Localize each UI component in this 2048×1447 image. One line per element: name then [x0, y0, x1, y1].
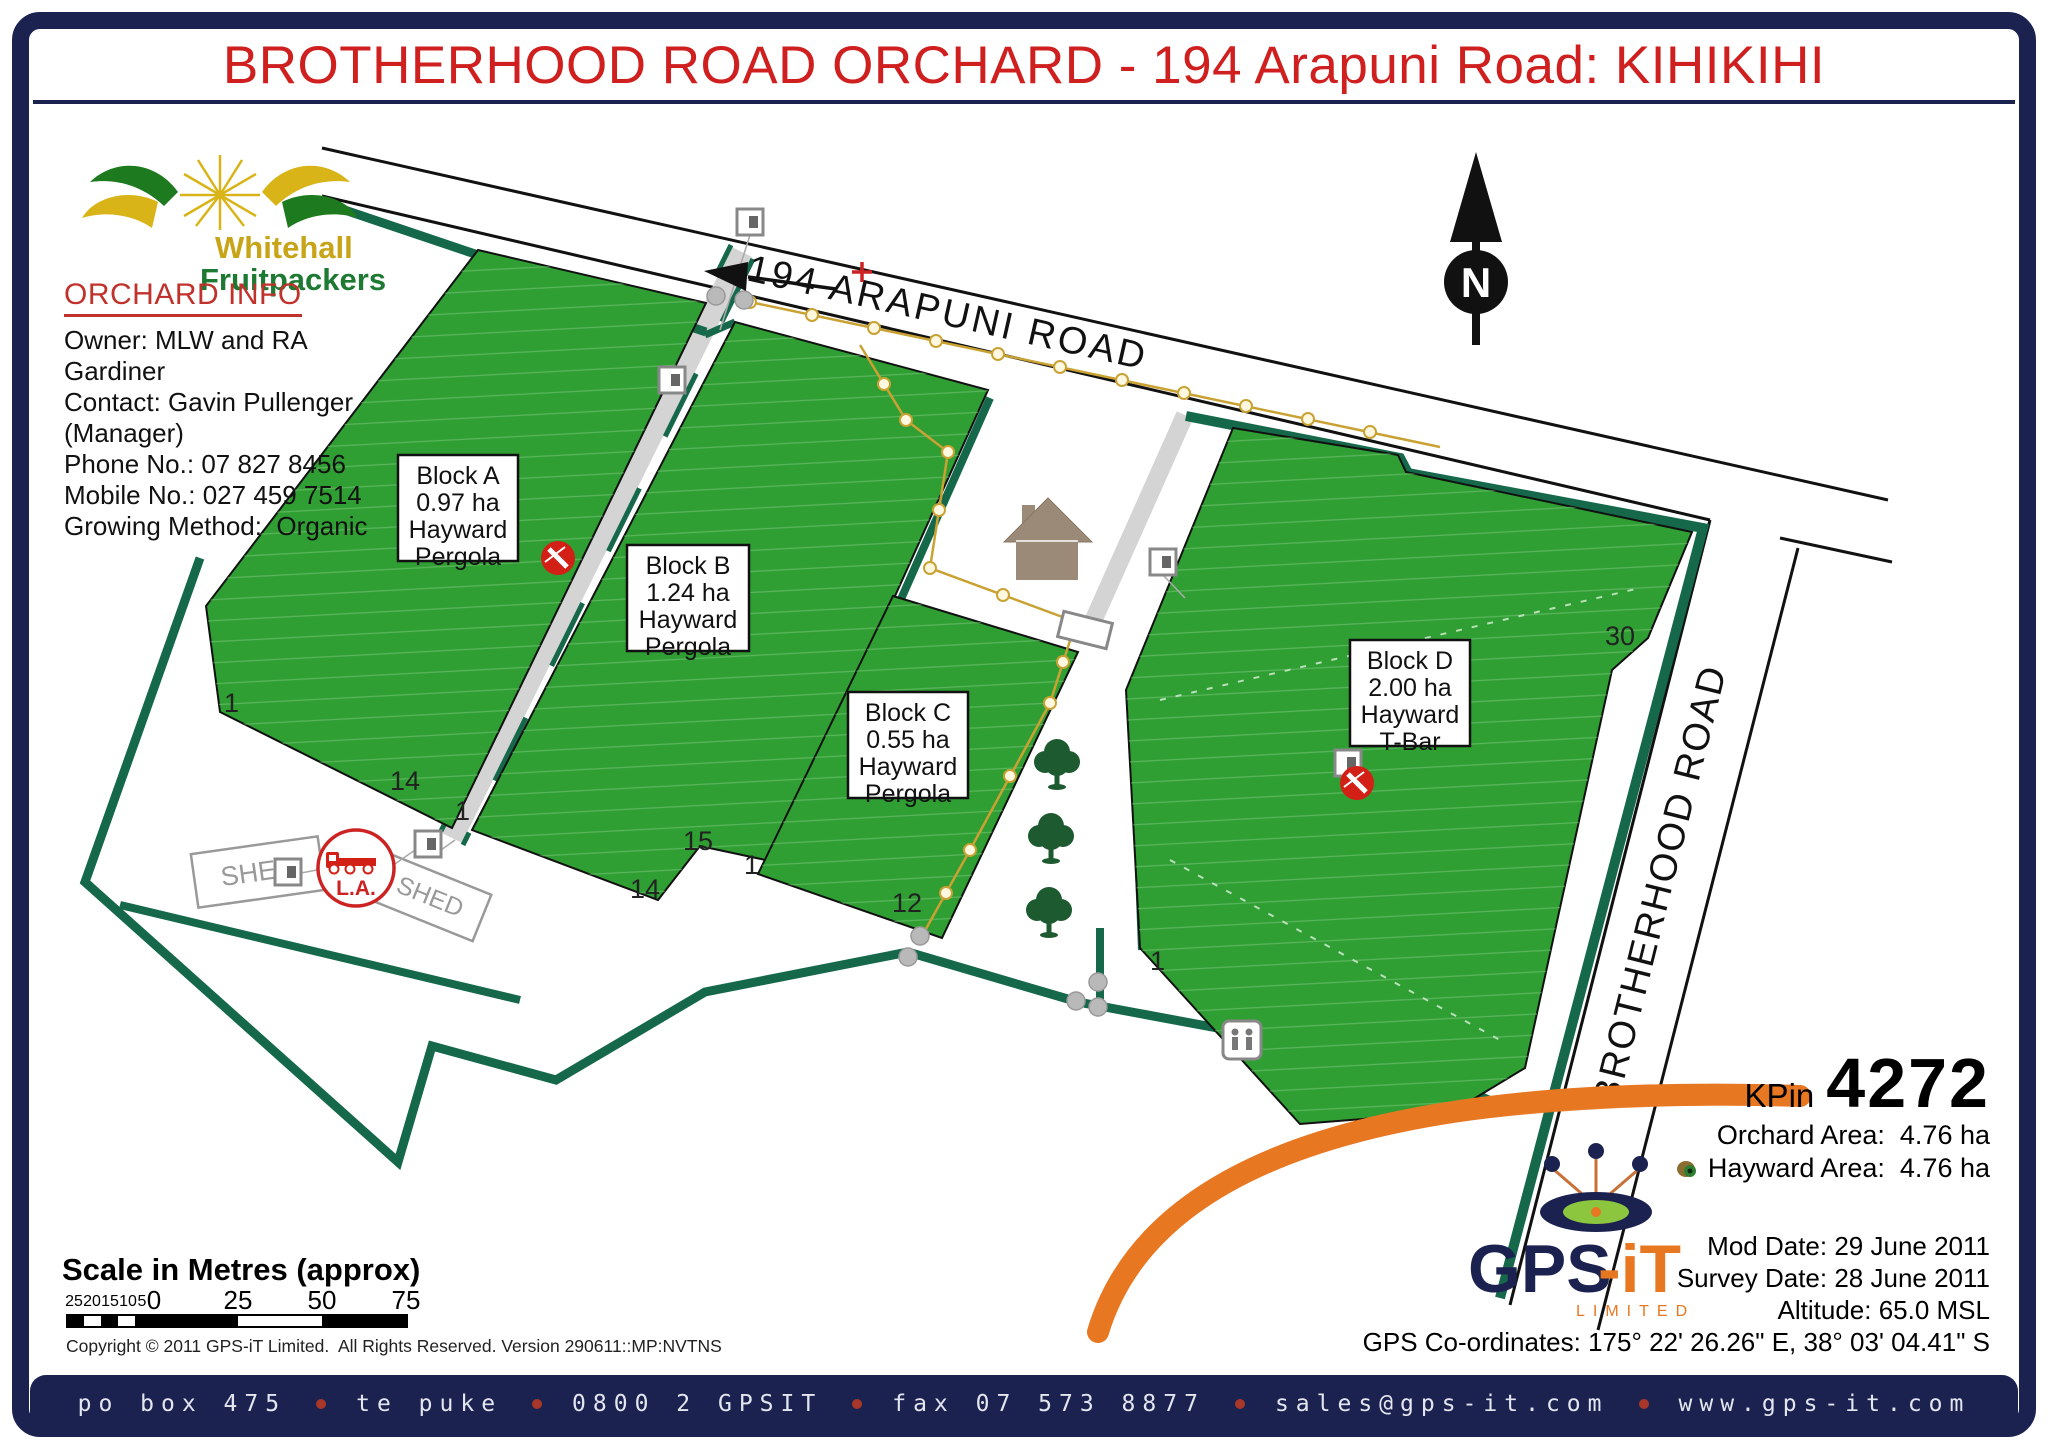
orchard-info-panel: ORCHARD INFO Owner: MLW and RA Gardiner … — [64, 278, 394, 542]
header: BROTHERHOOD ROAD ORCHARD - 194 Arapuni R… — [35, 32, 2013, 98]
tree-icons — [1026, 739, 1080, 938]
orchard-contact: Contact: Gavin Pullenger (Manager) — [64, 387, 394, 449]
whitehall-logo: Whitehall Fruitpackers — [60, 140, 390, 300]
whitehall-logo-line1: Whitehall — [215, 230, 353, 265]
load-area-marker: L.A. — [318, 830, 394, 906]
block-name: Block C — [865, 699, 951, 727]
footer-contact-bar: po box 475 te puke 0800 2 GPSIT fax 07 5… — [30, 1375, 2018, 1433]
survey-details: Mod Date: 29 June 2011 Survey Date: 28 J… — [1363, 1230, 1990, 1358]
gps-coordinates: GPS Co-ordinates: 175° 22' 26.26" E, 38°… — [1363, 1326, 1990, 1358]
row-number: 1 — [1150, 946, 1165, 976]
footer-separator-dot — [316, 1399, 326, 1409]
footer-fax: fax 07 573 8877 — [892, 1391, 1205, 1417]
row-number: 14 — [390, 766, 420, 796]
footer-po-box: po box 475 — [78, 1391, 286, 1417]
row-number: 14 — [630, 874, 660, 904]
hayward-area-value: Hayward Area: 4.76 ha — [1708, 1153, 1990, 1184]
footer-website: www.gps-it.com — [1679, 1391, 1971, 1417]
page-title: BROTHERHOOD ROAD ORCHARD - 194 Arapuni R… — [223, 35, 1825, 96]
orchard-mobile: Mobile No.: 027 459 7514 — [64, 480, 394, 511]
block-structure: T-Bar — [1379, 728, 1440, 756]
block-structure: Pergola — [645, 633, 731, 661]
block-variety: Hayward — [639, 606, 738, 634]
footer-separator-dot — [1235, 1399, 1245, 1409]
north-label: N — [1461, 259, 1491, 306]
scale-major-tick: 50 — [308, 1288, 337, 1315]
mod-date: Mod Date: 29 June 2011 — [1363, 1230, 1990, 1262]
scale-title: Scale in Metres (approx) — [62, 1252, 492, 1288]
scale-minor-tick: 20 — [83, 1293, 101, 1310]
row-number: 15 — [683, 826, 713, 856]
hayward-area-line: Hayward Area: 4.76 ha — [1676, 1153, 1990, 1184]
block-area: 0.97 ha — [416, 489, 500, 517]
scale-major-tick: 25 — [224, 1288, 253, 1315]
altitude: Altitude: 65.0 MSL — [1363, 1294, 1990, 1326]
row-number: 1 — [455, 796, 470, 826]
kpin-value: 4272 — [1826, 1048, 1990, 1118]
row-number: 1 — [224, 688, 239, 718]
hazard-marker-1 — [541, 541, 575, 575]
north-arrow: N — [1444, 152, 1508, 345]
scale-minor-tick: 25 — [65, 1293, 83, 1310]
block-area: 0.55 ha — [866, 726, 950, 754]
scale-minor-tick: 10 — [119, 1293, 137, 1310]
row-number: 12 — [892, 888, 922, 918]
block-structure: Pergola — [865, 780, 951, 808]
footer-town: te puke — [356, 1391, 502, 1417]
scale-minor-tick: 15 — [101, 1293, 119, 1310]
footer-email: sales@gps-it.com — [1275, 1391, 1609, 1417]
block-d-label: Block D 2.00 ha Hayward T-Bar — [1350, 640, 1470, 756]
scale-bar: Scale in Metres (approx) 25 20 15 10 5 0… — [62, 1252, 492, 1341]
copyright-line: Copyright © 2011 GPS-iT Limited. All Rig… — [66, 1336, 722, 1357]
row-number: 1 — [744, 850, 759, 880]
hazard-marker-2 — [1340, 766, 1374, 800]
block-name: Block A — [416, 462, 500, 490]
block-b-label: Block B 1.24 ha Hayward Pergola — [627, 545, 749, 661]
block-variety: Hayward — [409, 516, 508, 544]
block-c-label: Block C 0.55 ha Hayward Pergola — [848, 692, 968, 808]
toilet-icon — [1223, 1021, 1261, 1059]
footer-separator-dot — [852, 1399, 862, 1409]
block-name: Block B — [646, 552, 731, 580]
footer-separator-dot — [532, 1399, 542, 1409]
block-a-label: Block A 0.97 ha Hayward Pergola — [398, 455, 518, 571]
whitehall-logo-graphic — [82, 155, 358, 230]
scale-major-tick: 0 — [147, 1288, 161, 1315]
orchard-growing-method: Growing Method: Organic — [64, 511, 394, 542]
orchard-area-line: Orchard Area: 4.76 ha — [1676, 1120, 1990, 1151]
kiwifruit-icon — [1676, 1158, 1700, 1180]
block-area: 1.24 ha — [646, 579, 730, 607]
footer-phone: 0800 2 GPSIT — [572, 1391, 822, 1417]
orchard-phone: Phone No.: 07 827 8456 — [64, 449, 394, 480]
kpin-label: KPin — [1745, 1077, 1815, 1115]
row-number: 30 — [1605, 621, 1635, 651]
block-variety: Hayward — [859, 753, 958, 781]
scale-bar-graphic: 25 20 15 10 5 0 25 50 75 — [62, 1288, 492, 1336]
kpin-summary: KPin 4272 Orchard Area: 4.76 ha Hayward … — [1676, 1048, 1990, 1184]
title-divider — [33, 100, 2015, 104]
orchard-area-value: Orchard Area: 4.76 ha — [1717, 1120, 1990, 1151]
block-area: 2.00 ha — [1368, 674, 1452, 702]
scale-minor-tick: 5 — [138, 1293, 147, 1310]
orchard-map-page: SHED SHED — [0, 0, 2048, 1447]
footer-separator-dot — [1639, 1399, 1649, 1409]
orchard-owner: Owner: MLW and RA Gardiner — [64, 325, 394, 387]
orchard-info-heading: ORCHARD INFO — [64, 278, 302, 317]
survey-date: Survey Date: 28 June 2011 — [1363, 1262, 1990, 1294]
block-variety: Hayward — [1361, 701, 1460, 729]
house-icon — [1004, 498, 1092, 580]
block-structure: Pergola — [415, 543, 501, 571]
scale-major-tick: 75 — [392, 1288, 421, 1315]
load-area-label: L.A. — [336, 877, 376, 900]
block-name: Block D — [1367, 647, 1453, 675]
